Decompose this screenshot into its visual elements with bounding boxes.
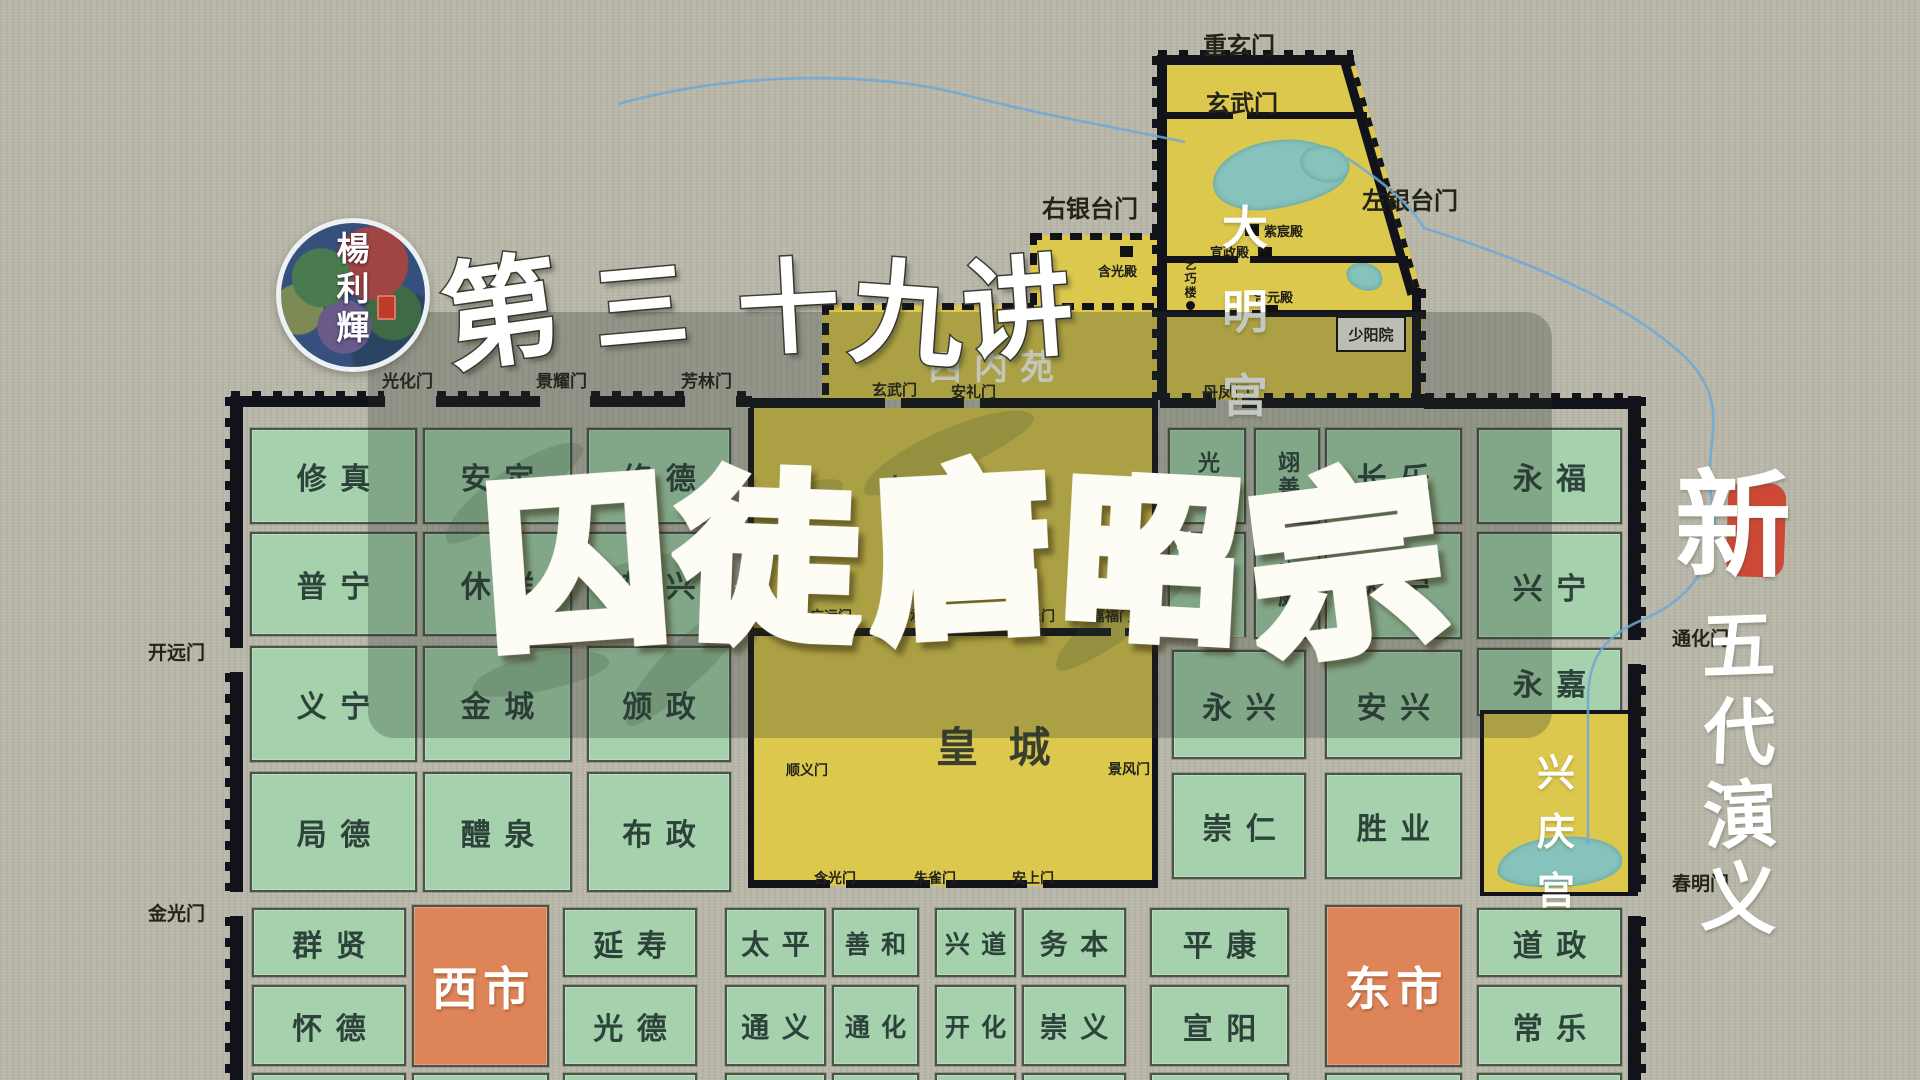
ward-label: 东市 [1339, 953, 1448, 1019]
ward-sliver [252, 1073, 406, 1080]
ward: 善和 [832, 908, 919, 977]
hall-label: 乞巧楼 [1182, 258, 1199, 300]
gate-label: 开远门 [148, 638, 205, 665]
main-title-char: 昭 [1058, 413, 1247, 677]
gate-label: 含光门 [814, 868, 856, 888]
gate-label: 重玄门 [1203, 26, 1275, 61]
ward: 通化 [832, 985, 919, 1066]
logo-author-char: 輝 [337, 312, 370, 347]
ward-sliver [412, 1073, 549, 1080]
ward: 胜业 [1325, 773, 1462, 879]
ward-label: 醴泉 [447, 810, 548, 854]
east-market: 东市 [1325, 905, 1462, 1067]
city-wall-segment [230, 396, 385, 407]
ward-sliver [832, 1073, 919, 1080]
main-title-char: 徒 [676, 415, 861, 676]
ward-label: 崇仁 [1189, 804, 1290, 848]
hall-marker [1120, 246, 1133, 257]
main-title-char: 囚 [476, 412, 674, 685]
ward: 崇仁 [1172, 773, 1306, 879]
ward-label: 平康 [1169, 921, 1270, 965]
city-wall-segment [1628, 916, 1641, 1080]
west-market: 西市 [412, 905, 549, 1067]
logo-author-char: 利 [337, 273, 370, 308]
lecture-title-char: 讲 [957, 216, 1078, 383]
ward-label: 常乐 [1499, 1004, 1600, 1048]
daming-char: 大 [1222, 192, 1268, 258]
gate-label: 安上门 [1012, 868, 1054, 888]
ward: 崇义 [1022, 985, 1126, 1066]
logo-author-char: 楊 [337, 233, 370, 268]
ward: 平康 [1150, 908, 1289, 977]
ward-sliver [1325, 1073, 1462, 1080]
ward-label: 胜业 [1343, 804, 1444, 848]
ward: 常乐 [1477, 985, 1622, 1066]
ward-label: 群贤 [279, 921, 380, 965]
xingqing-palace-label: 兴庆宫 [1537, 742, 1575, 915]
ward-label: 崇义 [1027, 1006, 1121, 1046]
ward-label: 兴道 [934, 925, 1018, 961]
channel-name-vertical: 楊利輝 [337, 233, 370, 347]
logo-seal-stamp-icon [377, 295, 396, 320]
series-badge-char: 新 [1675, 432, 1791, 600]
lecture-title-char: 十 [733, 224, 843, 376]
city-wall-segment [230, 672, 243, 892]
ward-label: 善和 [834, 925, 918, 961]
ward-label: 布政 [609, 810, 710, 854]
ward: 局德 [250, 772, 417, 892]
gate-label: 顺义门 [786, 760, 828, 780]
city-wall-segment [1250, 256, 1408, 263]
city-wall-segment [1628, 664, 1641, 892]
city-wall-segment [230, 396, 243, 648]
lecture-title-char: 三 [587, 228, 693, 372]
city-wall-segment [1628, 396, 1641, 640]
xingqing-char: 庆 [1537, 801, 1575, 856]
ward-sliver [725, 1073, 826, 1080]
hall-label: 紫宸殿 [1264, 221, 1303, 240]
ward: 怀德 [252, 985, 406, 1066]
ward: 开化 [935, 985, 1016, 1066]
main-title-char: 唐 [864, 407, 1055, 673]
ward: 通义 [725, 985, 826, 1066]
ward: 布政 [587, 772, 731, 892]
xingqing-char: 宫 [1537, 860, 1575, 915]
gate-label: 金光门 [148, 899, 205, 926]
ward-label: 道政 [1499, 921, 1600, 965]
ward-label: 西市 [426, 953, 535, 1019]
hall-marker [1186, 301, 1195, 310]
ward-sliver [1022, 1073, 1126, 1080]
lecture-title-char: 第 [430, 210, 571, 396]
gate-label: 玄武门 [1206, 84, 1278, 119]
ward: 醴泉 [423, 772, 572, 892]
ward-sliver [1150, 1073, 1289, 1080]
ward-label: 光德 [580, 1004, 681, 1048]
ward: 宣阳 [1150, 985, 1289, 1066]
ward: 务本 [1022, 908, 1126, 977]
series-name-char: 义 [1699, 835, 1781, 949]
ward: 道政 [1477, 908, 1622, 977]
ward: 群贤 [252, 908, 406, 977]
city-wall-segment [1043, 880, 1158, 888]
ward-sliver [935, 1073, 1016, 1080]
ward-sliver [563, 1073, 697, 1080]
ward-label: 通义 [729, 1006, 823, 1046]
ward-label: 宣阳 [1169, 1004, 1270, 1048]
ward-label: 太平 [729, 923, 823, 963]
ward-label: 怀德 [279, 1004, 380, 1048]
ward-label: 通化 [834, 1008, 918, 1044]
ward: 兴道 [935, 908, 1016, 977]
ward: 光德 [563, 985, 697, 1066]
video-title-card: 修真安定修德普宁休祥辅兴义宁金城颁政局德醴泉布政群贤怀德西市延寿光德太平通义善和… [0, 0, 1920, 1080]
ward-label: 局德 [283, 810, 384, 854]
xingqing-char: 兴 [1537, 742, 1575, 797]
gate-label: 景风门 [1108, 759, 1150, 779]
ward-label: 延寿 [580, 921, 681, 965]
ward: 太平 [725, 908, 826, 977]
lecture-title-char: 九 [845, 219, 970, 392]
ward-sliver [1477, 1073, 1622, 1080]
gate-label: 朱雀门 [914, 868, 956, 888]
main-title-char: 宗 [1234, 404, 1456, 700]
gate-label: 左银台门 [1362, 181, 1458, 216]
city-wall-segment [230, 916, 243, 1080]
hall-label: 含光殿 [1098, 261, 1137, 280]
ward-label: 开化 [934, 1008, 1018, 1044]
ward: 延寿 [563, 908, 697, 977]
channel-logo-avatar: 楊利輝 [276, 218, 430, 372]
ward-label: 务本 [1027, 923, 1121, 963]
